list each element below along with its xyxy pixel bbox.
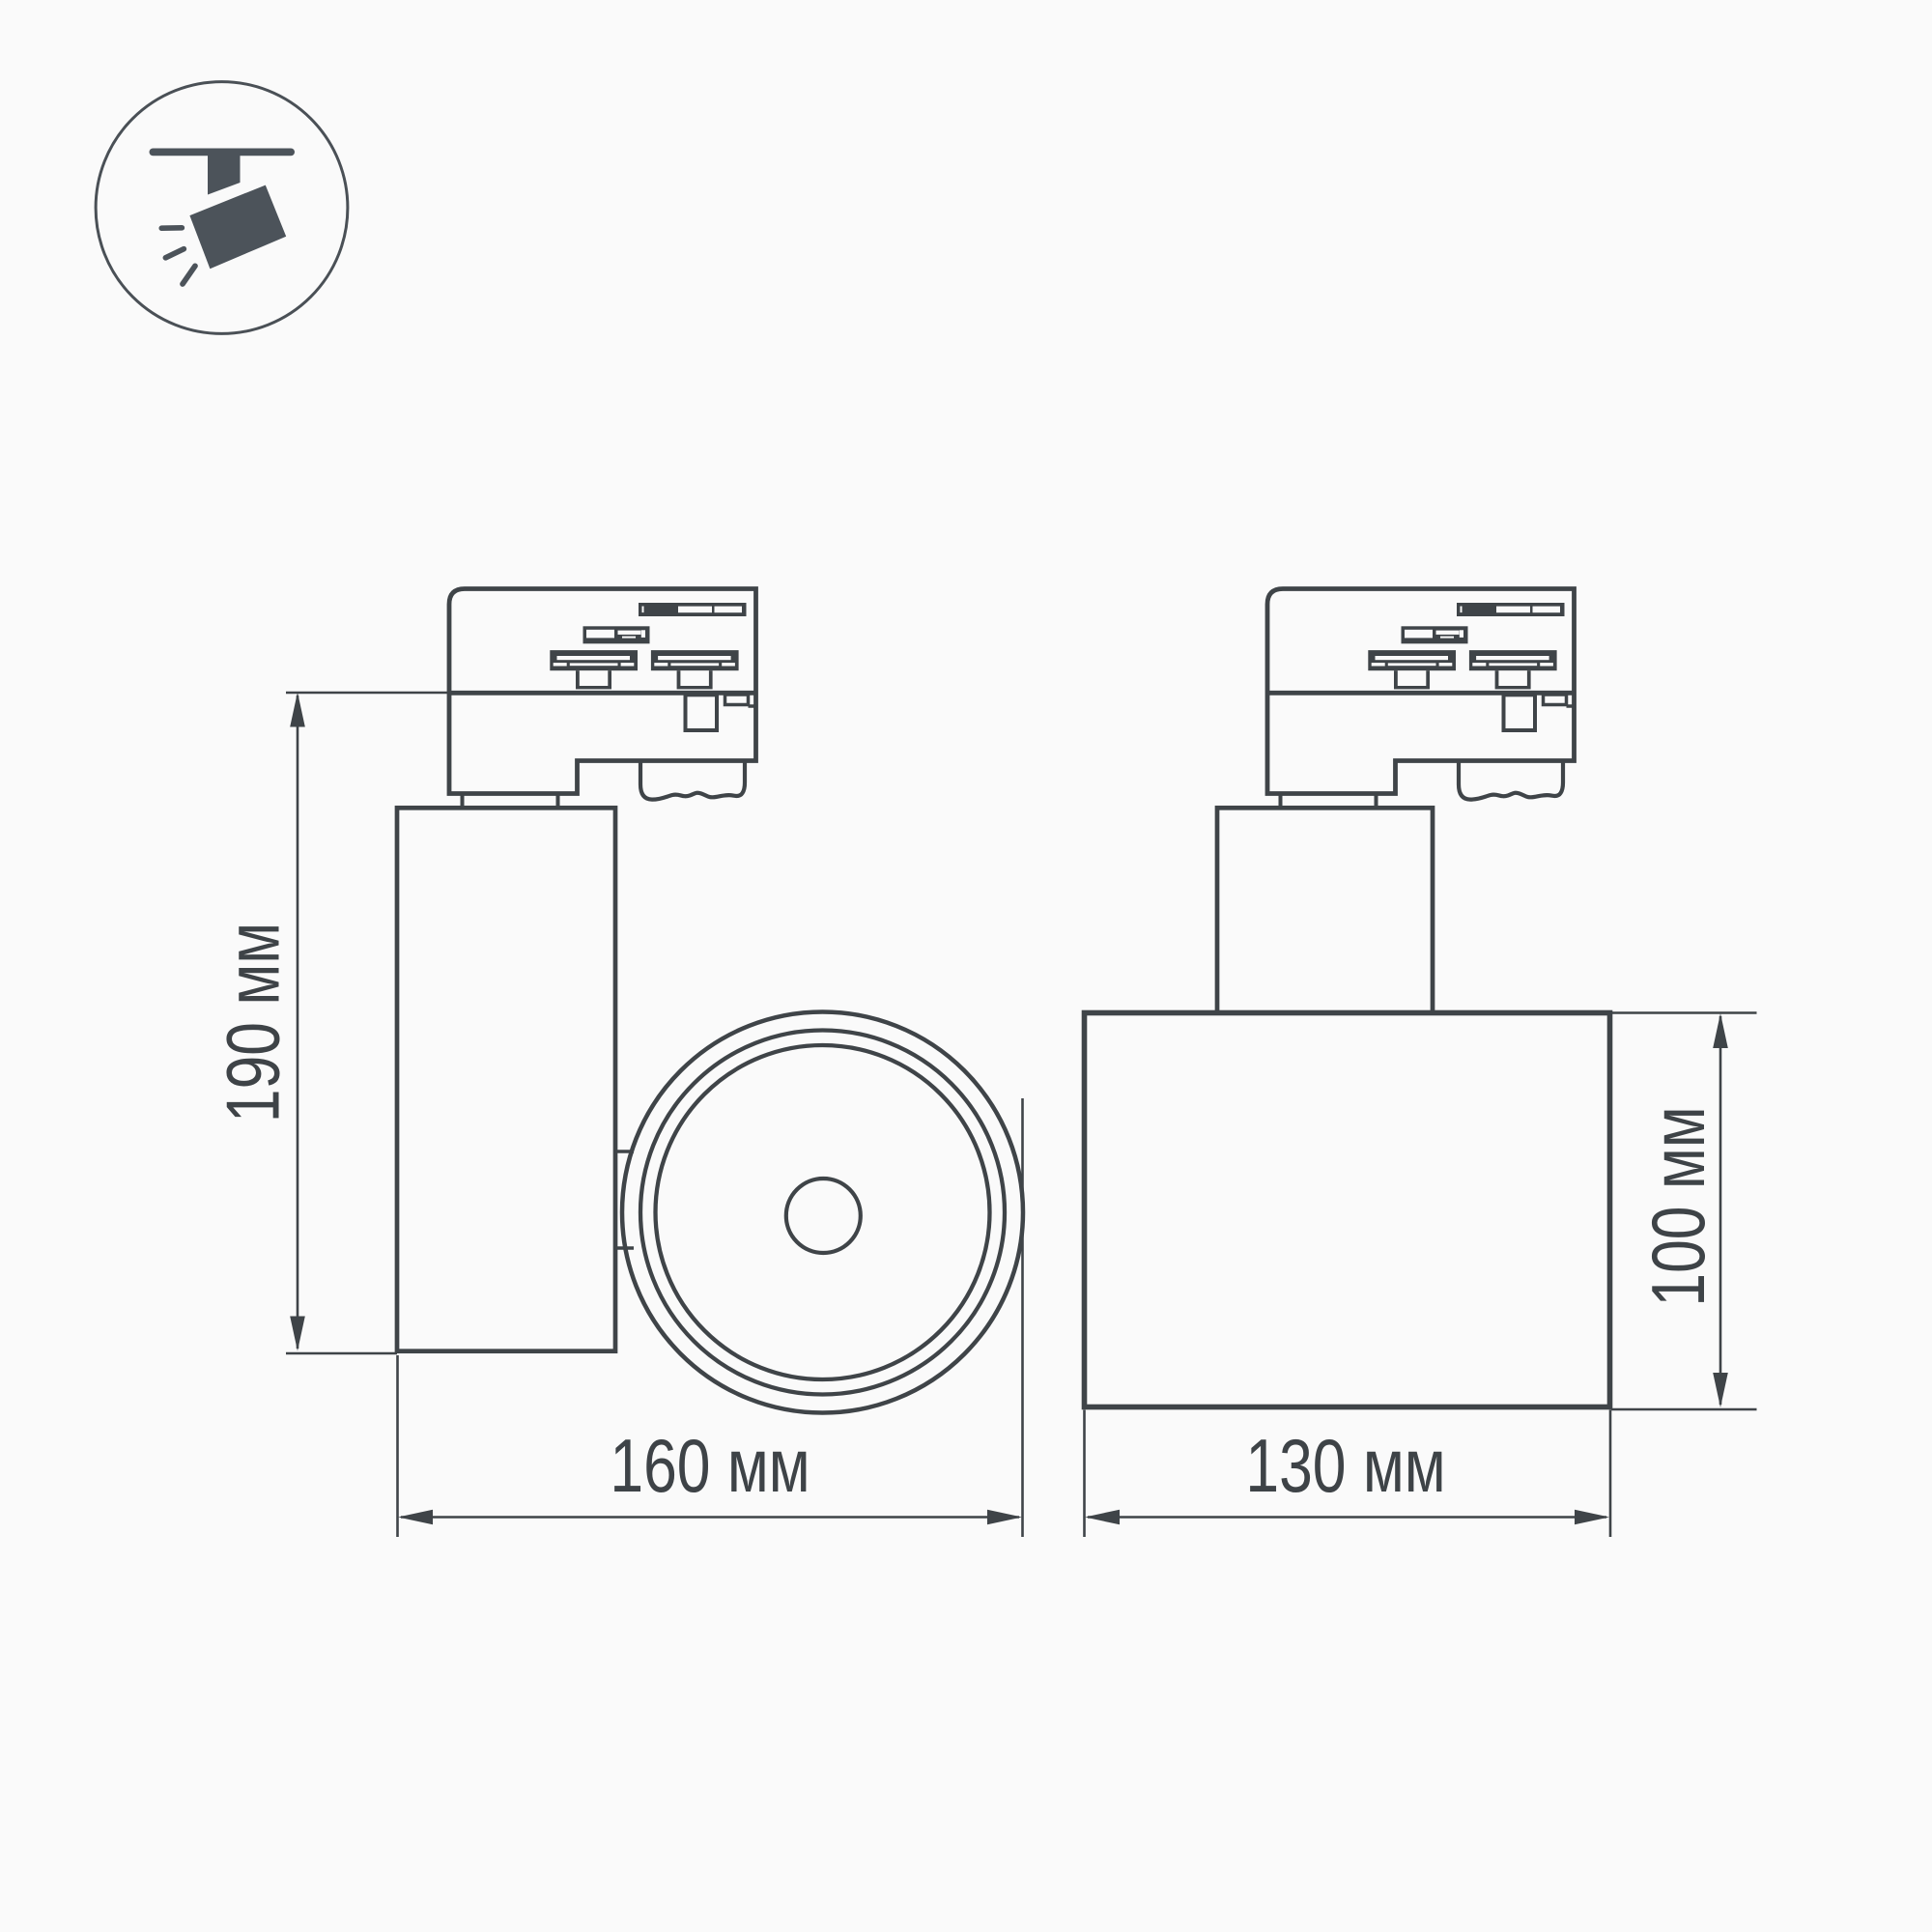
- svg-text:100 мм: 100 мм: [1635, 1106, 1719, 1306]
- svg-text:160 мм: 160 мм: [610, 1423, 810, 1507]
- svg-text:130 мм: 130 мм: [1245, 1423, 1445, 1507]
- svg-text:190 мм: 190 мм: [211, 923, 295, 1122]
